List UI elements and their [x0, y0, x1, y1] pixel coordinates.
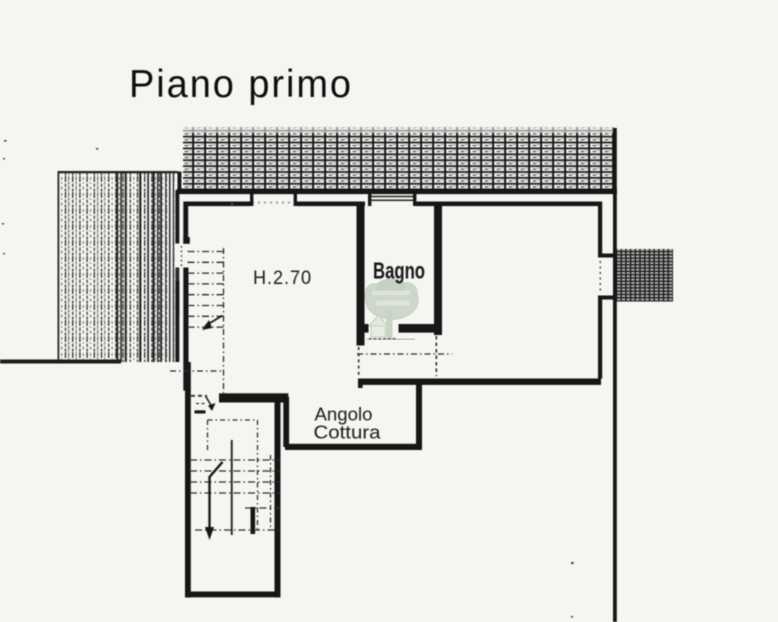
svg-text:Piano primo: Piano primo [129, 63, 353, 106]
svg-text:Bagno: Bagno [373, 258, 425, 284]
svg-text:Angolo: Angolo [315, 405, 373, 425]
svg-text:Cottura: Cottura [314, 423, 382, 443]
svg-text:H.2.70: H.2.70 [253, 267, 312, 289]
